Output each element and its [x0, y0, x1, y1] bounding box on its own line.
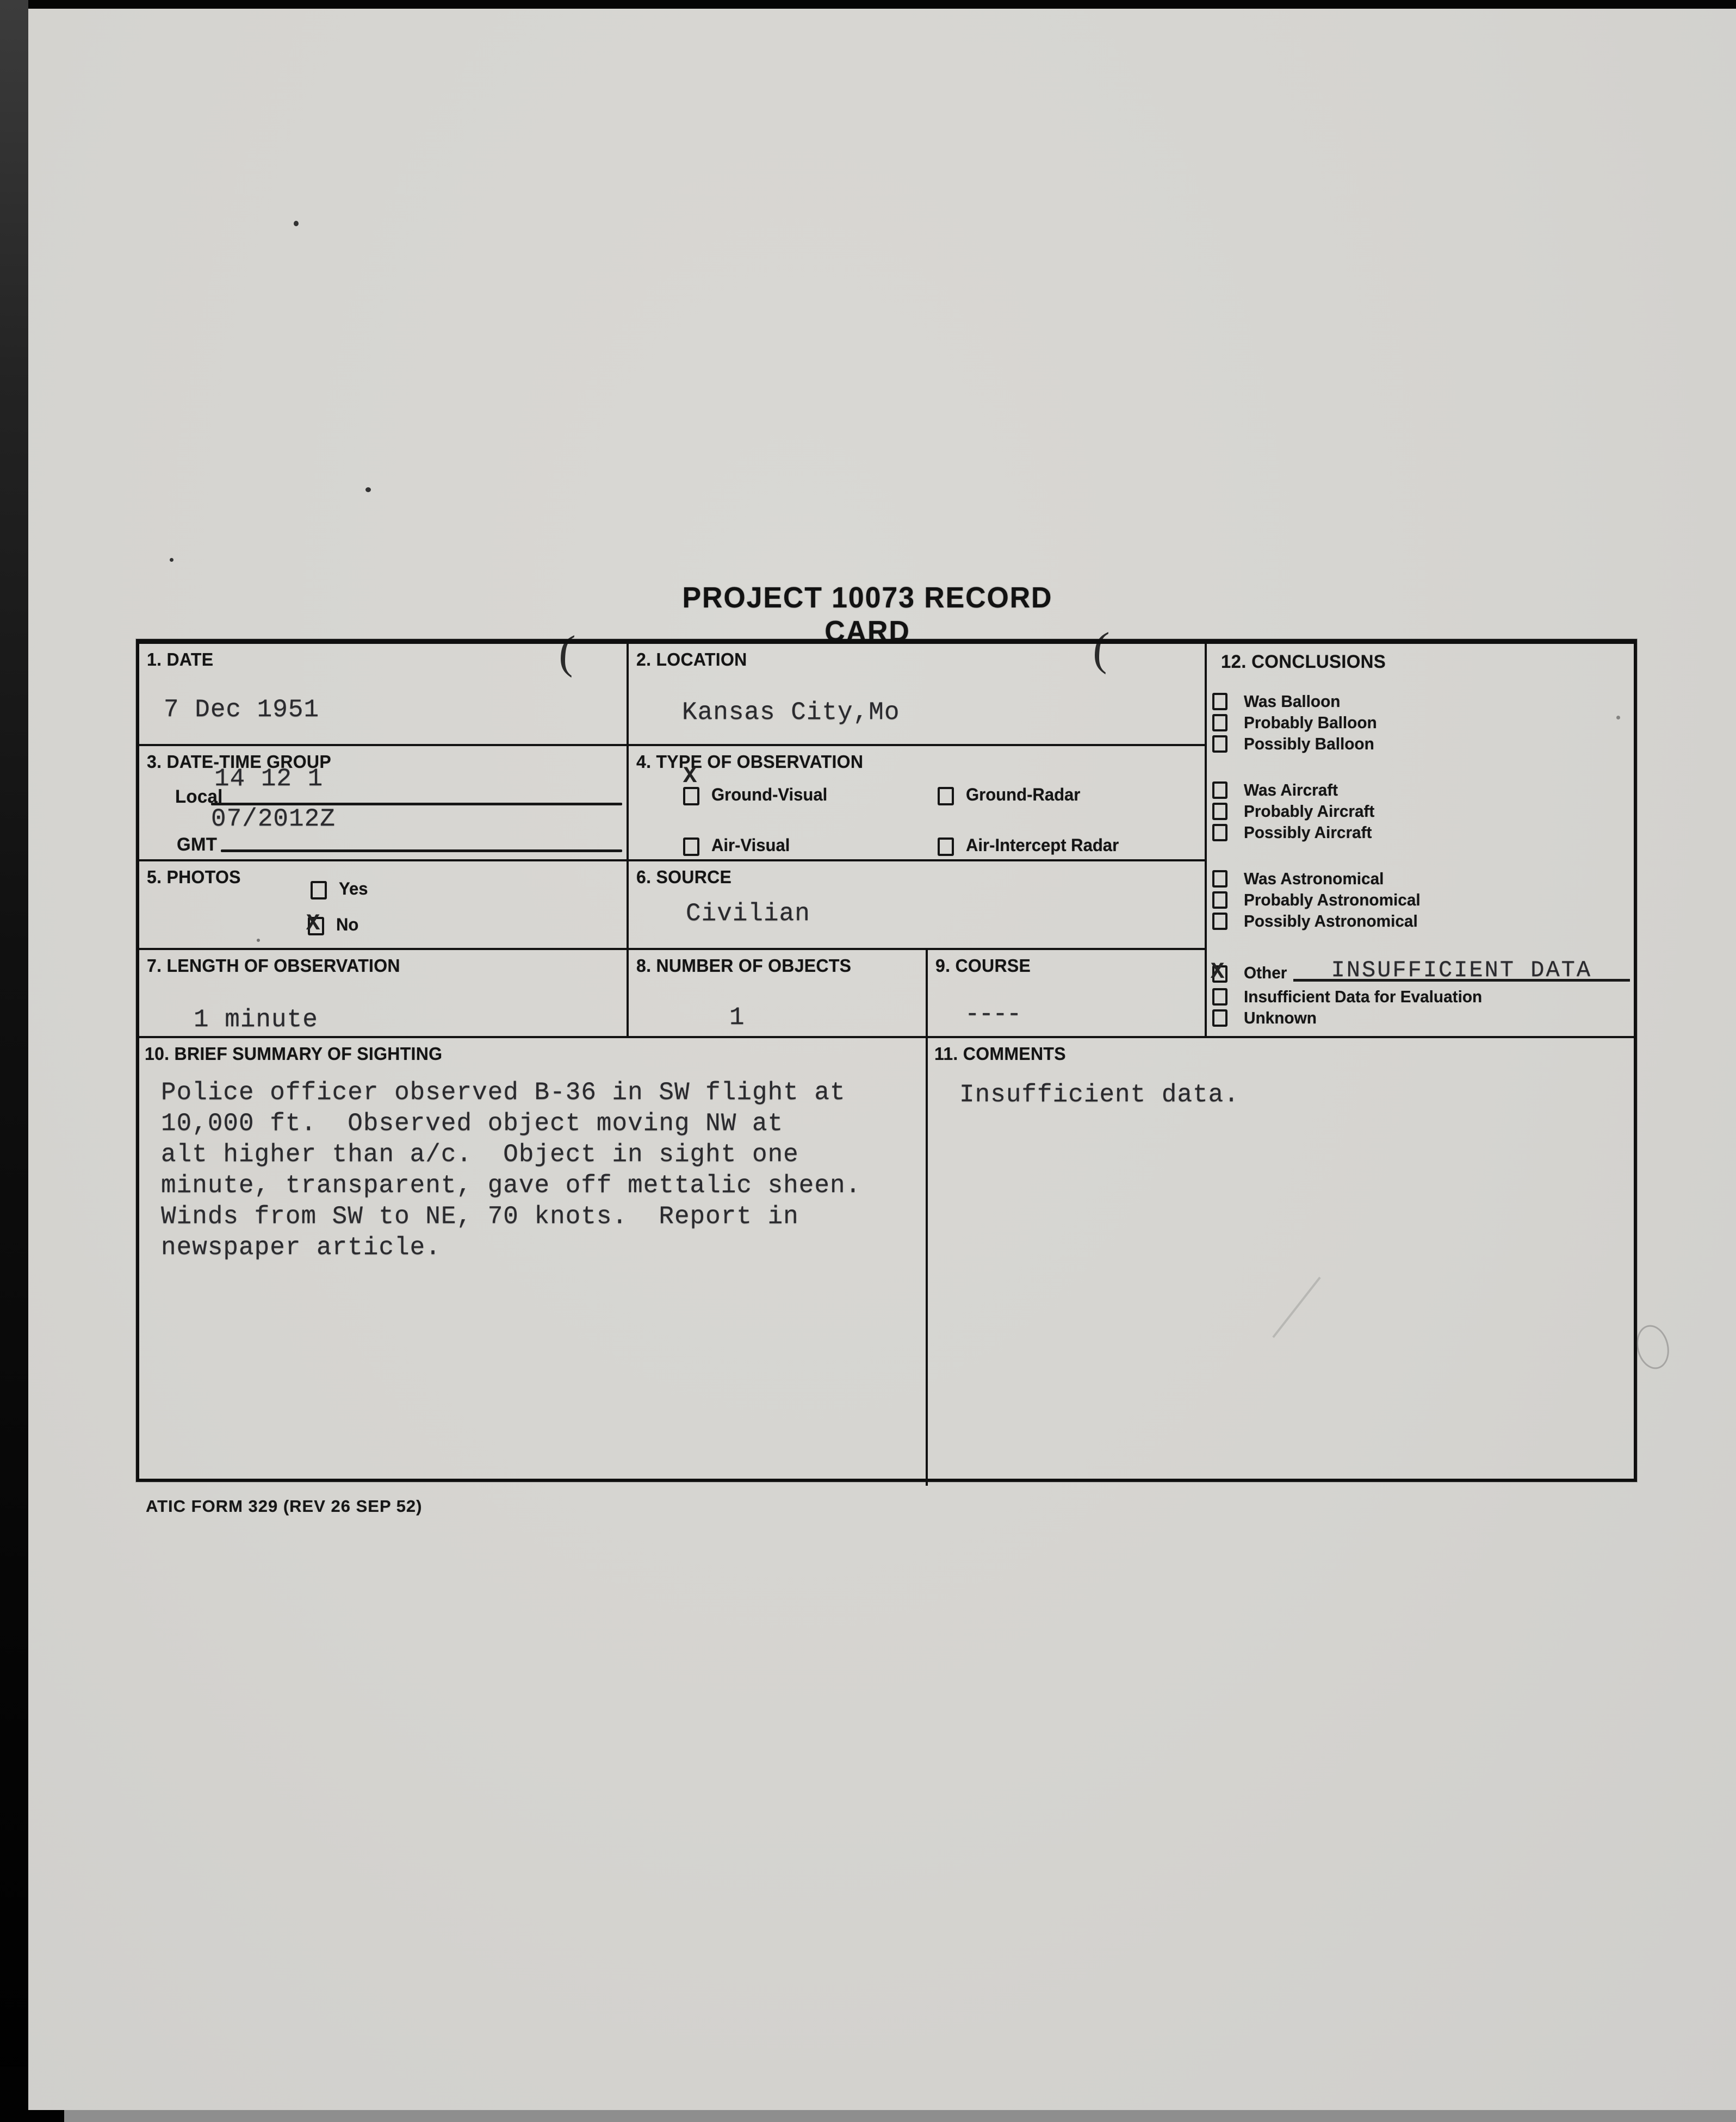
form-number: ATIC FORM 329 (REV 26 SEP 52) — [146, 1497, 423, 1516]
unknown-checkbox — [1212, 1009, 1227, 1027]
possibly-aircraft-checkbox — [1212, 824, 1227, 841]
air-visual-label: Air-Visual — [711, 835, 790, 855]
possibly-balloon-checkbox — [1212, 735, 1227, 753]
ground-radar-checkbox — [938, 787, 954, 805]
option-air-intercept-radar: Air-Intercept Radar — [938, 837, 1124, 856]
field-type-of-observation: 4. TYPE OF OBSERVATION X Ground-Visual G… — [629, 746, 1207, 861]
ground-visual-check-mark: X — [683, 763, 697, 789]
photos-no-label: No — [336, 915, 358, 935]
possibly-astronomical-checkbox — [1212, 913, 1227, 930]
scan-speck — [294, 221, 299, 226]
page-title: PROJECT 10073 RECORD CARD — [653, 581, 1081, 648]
comments-value: Insufficient data. — [959, 1081, 1239, 1109]
option-air-visual: Air-Visual — [683, 837, 792, 856]
conclusion-probably-balloon: Probably Balloon — [1212, 712, 1630, 733]
date-value: 7 Dec 1951 — [164, 696, 319, 724]
other-label: Other — [1244, 963, 1287, 983]
number-of-objects-value: 1 — [729, 1003, 745, 1032]
scan-edge-left — [0, 0, 28, 2122]
course-label: 9. COURSE — [935, 955, 1196, 976]
brief-summary-label: 10. BRIEF SUMMARY OF SIGHTING — [145, 1044, 902, 1064]
other-check-mark: X — [1211, 959, 1224, 985]
option-photos-no: X No — [308, 917, 359, 935]
conclusion-other: X Other INSUFFICIENT DATA — [1212, 957, 1630, 983]
ground-visual-checkbox: X — [683, 787, 699, 805]
photos-no-check-mark: X — [306, 910, 320, 936]
photos-yes-checkbox — [311, 881, 327, 899]
probably-astronomical-checkbox — [1212, 891, 1227, 909]
conclusion-possibly-astronomical: Possibly Astronomical — [1212, 910, 1630, 932]
conclusions-label: 12. CONCLUSIONS — [1221, 652, 1621, 673]
insufficient-data-label: Insufficient Data for Evaluation — [1244, 987, 1482, 1007]
brief-summary-text: Police officer observed B-36 in SW fligh… — [161, 1077, 917, 1263]
was-balloon-label: Was Balloon — [1244, 692, 1340, 711]
conclusions-list: Was Balloon Probably Balloon Possibly Ba… — [1212, 691, 1630, 1028]
pencil-mark-oval — [1632, 1321, 1673, 1373]
scan-speck — [170, 558, 173, 562]
was-aircraft-checkbox — [1212, 781, 1227, 799]
was-aircraft-label: Was Aircraft — [1244, 780, 1338, 800]
ground-visual-label: Ground-Visual — [711, 785, 827, 805]
source-value: Civilian — [686, 899, 810, 928]
field-comments: 11. COMMENTS Insufficient data. — [928, 1038, 1634, 1486]
length-of-observation-label: 7. LENGTH OF OBSERVATION — [147, 955, 612, 976]
conclusion-probably-astronomical: Probably Astronomical — [1212, 889, 1630, 910]
probably-balloon-checkbox — [1212, 714, 1227, 731]
conclusion-possibly-balloon: Possibly Balloon — [1212, 733, 1630, 754]
possibly-aircraft-label: Possibly Aircraft — [1244, 823, 1372, 842]
was-balloon-checkbox — [1212, 693, 1227, 710]
field-date: 1. DATE 7 Dec 1951 — [139, 644, 629, 746]
conclusion-unknown: Unknown — [1212, 1007, 1630, 1028]
air-intercept-radar-label: Air-Intercept Radar — [966, 835, 1119, 855]
conclusion-was-astronomical: Was Astronomical — [1212, 868, 1630, 889]
local-value: 14 12 1 — [214, 765, 323, 793]
possibly-balloon-label: Possibly Balloon — [1244, 734, 1374, 754]
conclusion-was-balloon: Was Balloon — [1212, 691, 1630, 712]
photos-no-checkbox: X — [308, 917, 324, 935]
length-of-observation-value: 1 minute — [194, 1006, 318, 1034]
scan-speck — [1616, 716, 1620, 719]
field-length-of-observation: 7. LENGTH OF OBSERVATION 1 minute — [139, 950, 629, 1038]
field-brief-summary: 10. BRIEF SUMMARY OF SIGHTING Police off… — [139, 1038, 928, 1486]
other-checkbox: X — [1212, 965, 1227, 983]
unknown-label: Unknown — [1244, 1008, 1317, 1028]
probably-aircraft-checkbox — [1212, 803, 1227, 820]
gmt-label: GMT — [177, 834, 217, 855]
field-course: 9. COURSE ---- — [928, 950, 1207, 1038]
scanned-record-card-page: PROJECT 10073 RECORD CARD ( ( 1. DATE 7 … — [0, 0, 1736, 2122]
source-label: 6. SOURCE — [636, 867, 1188, 888]
field-location: 2. LOCATION Kansas City,Mo — [629, 644, 1207, 746]
conclusion-was-aircraft: Was Aircraft — [1212, 779, 1630, 801]
photos-yes-label: Yes — [339, 879, 368, 899]
ground-radar-label: Ground-Radar — [966, 785, 1080, 805]
paper-sheet: PROJECT 10073 RECORD CARD ( ( 1. DATE 7 … — [28, 9, 1736, 2110]
conclusion-insufficient-data: Insufficient Data for Evaluation — [1212, 986, 1630, 1007]
location-value: Kansas City,Mo — [682, 698, 900, 727]
air-intercept-radar-checkbox — [938, 837, 954, 856]
was-astronomical-checkbox — [1212, 870, 1227, 888]
probably-astronomical-label: Probably Astronomical — [1244, 890, 1421, 910]
option-ground-visual: X Ground-Visual — [683, 787, 831, 805]
option-ground-radar: Ground-Radar — [938, 787, 1084, 805]
scan-speck — [257, 939, 260, 942]
date-label: 1. DATE — [147, 649, 612, 670]
scan-speck — [365, 487, 371, 492]
probably-balloon-label: Probably Balloon — [1244, 713, 1377, 733]
record-card-table: 1. DATE 7 Dec 1951 2. LOCATION Kansas Ci… — [136, 639, 1637, 1482]
field-number-of-objects: 8. NUMBER OF OBJECTS 1 — [629, 950, 928, 1038]
other-value: INSUFFICIENT DATA — [1331, 958, 1592, 982]
air-visual-checkbox — [683, 837, 699, 856]
conclusion-possibly-aircraft: Possibly Aircraft — [1212, 822, 1630, 843]
was-astronomical-label: Was Astronomical — [1244, 869, 1384, 889]
field-conclusions: 12. CONCLUSIONS Was Balloon Probably Bal… — [1207, 644, 1634, 1038]
course-value: ---- — [965, 1000, 1020, 1028]
insufficient-data-checkbox — [1212, 988, 1227, 1006]
type-of-observation-label: 4. TYPE OF OBSERVATION — [636, 752, 1188, 772]
option-photos-yes: Yes — [311, 881, 369, 899]
field-photos: 5. PHOTOS Yes X No — [139, 861, 629, 950]
conclusion-probably-aircraft: Probably Aircraft — [1212, 801, 1630, 822]
possibly-astronomical-label: Possibly Astronomical — [1244, 911, 1418, 931]
gmt-underline — [221, 849, 622, 852]
gmt-value: 07/2012Z — [211, 805, 336, 833]
probably-aircraft-label: Probably Aircraft — [1244, 802, 1374, 821]
photos-label: 5. PHOTOS — [147, 867, 612, 888]
other-underline: INSUFFICIENT DATA — [1293, 955, 1630, 982]
field-source: 6. SOURCE Civilian — [629, 861, 1207, 950]
number-of-objects-label: 8. NUMBER OF OBJECTS — [636, 955, 917, 976]
location-label: 2. LOCATION — [636, 649, 1188, 670]
field-datetime-group: 3. DATE-TIME GROUP Local 14 12 1 07/2012… — [139, 746, 629, 861]
comments-label: 11. COMMENTS — [934, 1044, 1613, 1064]
